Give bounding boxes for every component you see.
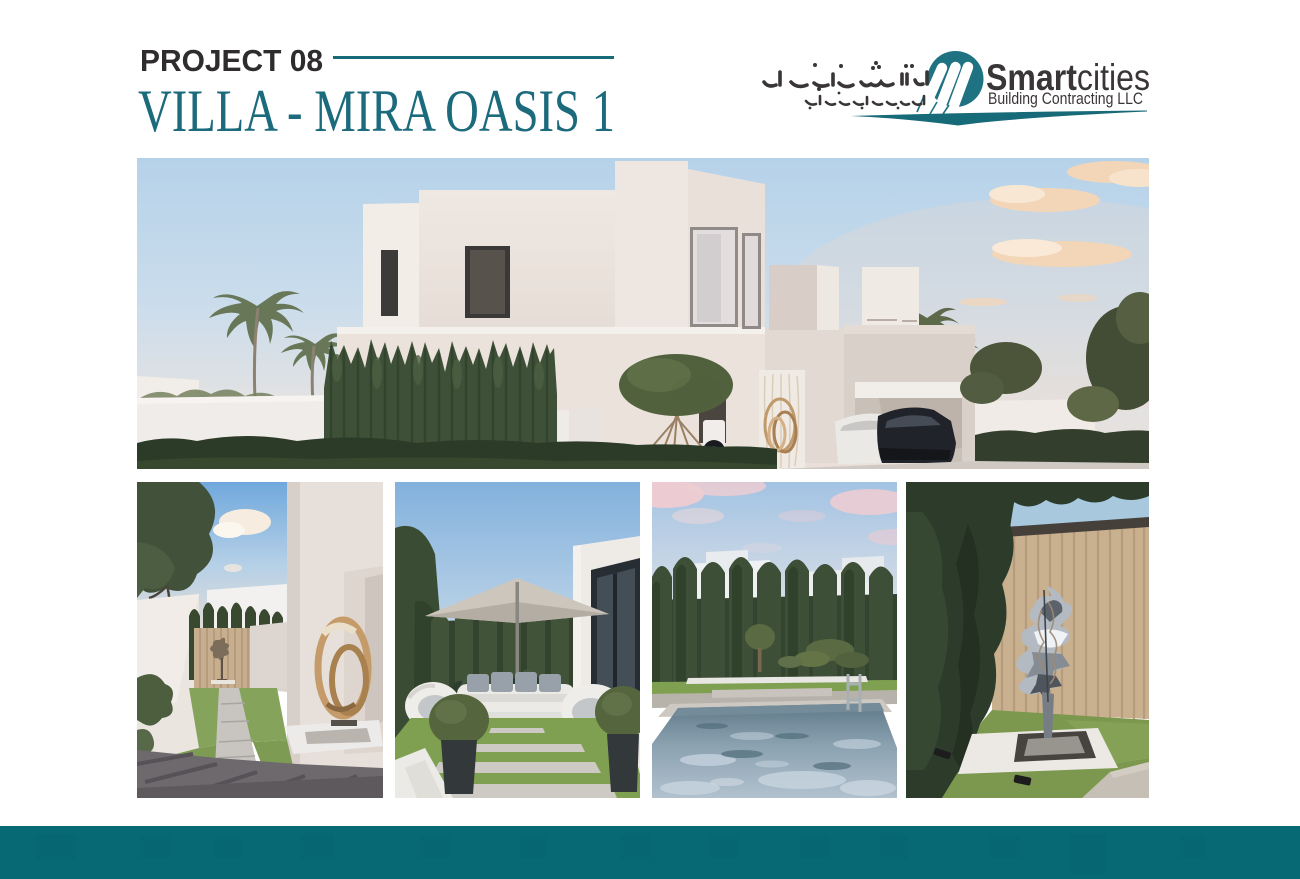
svg-text:PROJECT 08: PROJECT 08	[140, 43, 323, 78]
svg-text:VILLA - MIRA OASIS 1: VILLA - MIRA OASIS 1	[138, 78, 615, 144]
svg-text:Building Contracting LLC: Building Contracting LLC	[988, 89, 1143, 108]
